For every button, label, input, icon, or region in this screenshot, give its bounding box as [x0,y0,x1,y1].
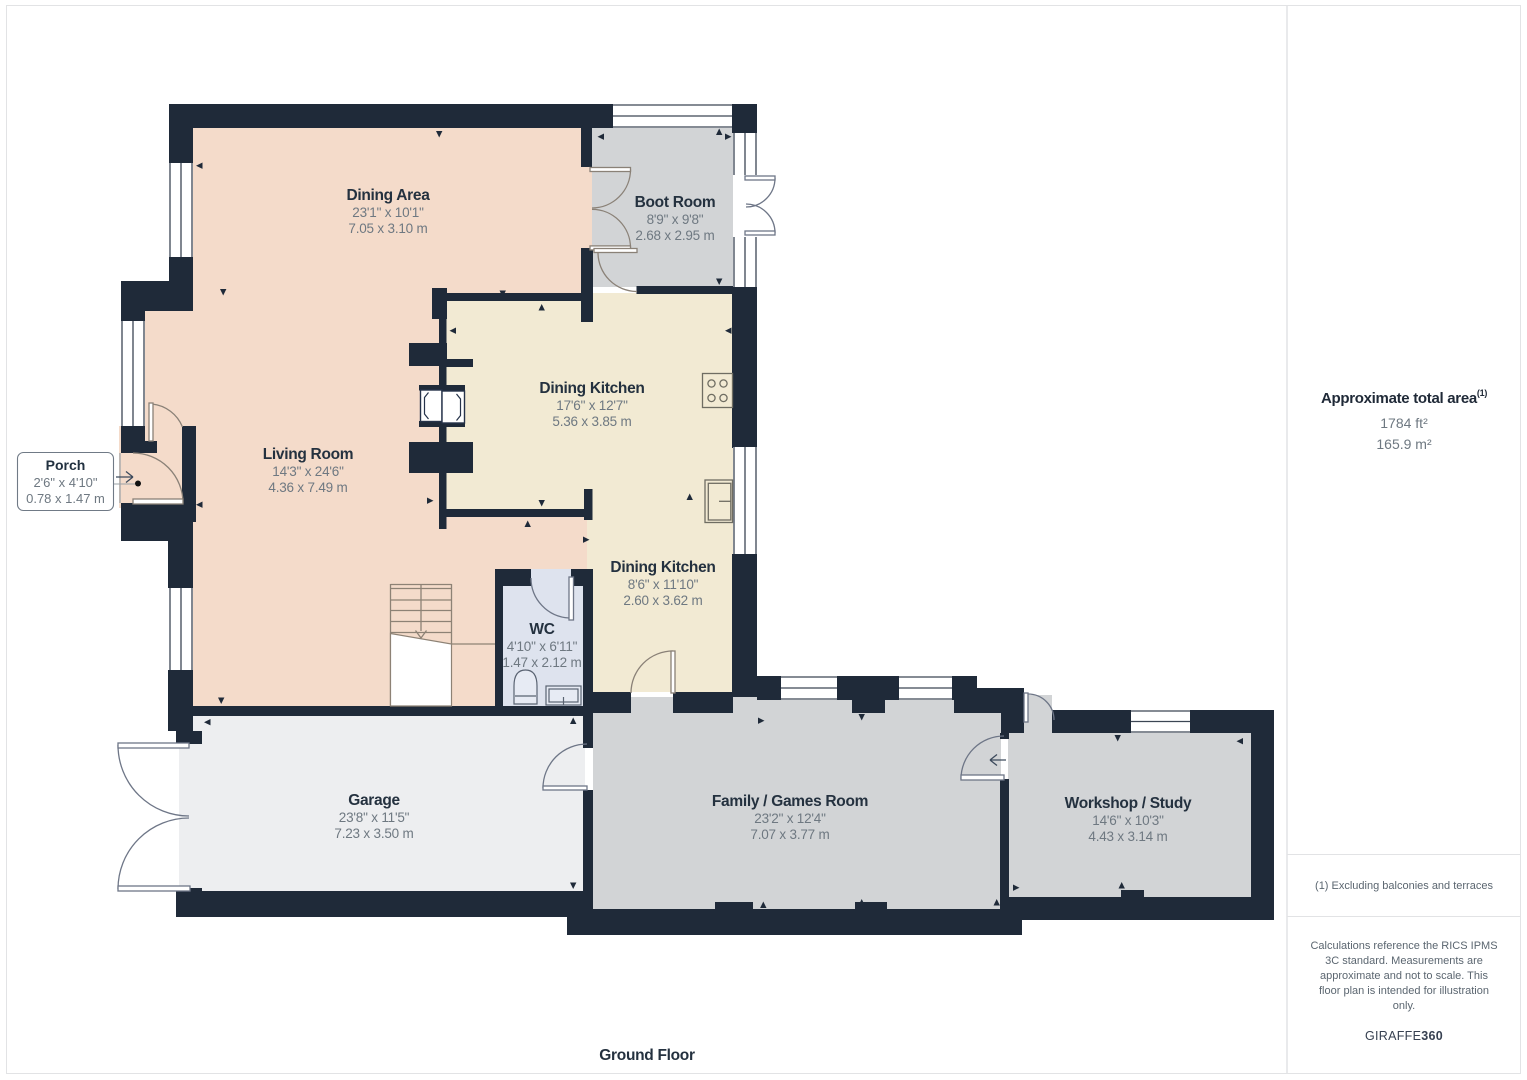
svg-text:WC: WC [529,621,554,638]
svg-text:(1) Excluding balconies and te: (1) Excluding balconies and terraces [1315,880,1493,892]
svg-text:approximate and not to scale.: approximate and not to scale. This [1320,970,1488,982]
svg-text:Ground Floor: Ground Floor [599,1047,695,1064]
svg-text:Dining Kitchen: Dining Kitchen [610,559,715,576]
svg-text:23'1" x 10'1": 23'1" x 10'1" [352,205,424,220]
svg-text:Dining Kitchen: Dining Kitchen [539,380,644,397]
svg-text:2.60 x 3.62 m: 2.60 x 3.62 m [623,593,702,608]
svg-text:Porch: Porch [46,457,86,473]
svg-text:Dining Area: Dining Area [346,187,430,204]
svg-text:Family / Games Room: Family / Games Room [712,793,868,810]
svg-text:Boot Room: Boot Room [635,194,716,211]
svg-text:7.05 x 3.10 m: 7.05 x 3.10 m [348,221,427,236]
svg-text:7.23 x 3.50 m: 7.23 x 3.50 m [334,826,413,841]
svg-text:2'6" x 4'10": 2'6" x 4'10" [33,475,97,490]
svg-text:Calculations reference the RIC: Calculations reference the RICS IPMS [1310,940,1497,952]
svg-text:8'9" x 9'8": 8'9" x 9'8" [647,212,704,227]
svg-text:5.36 x 3.85 m: 5.36 x 3.85 m [552,414,631,429]
svg-text:GIRAFFE360: GIRAFFE360 [1365,1029,1443,1043]
svg-text:7.07 x 3.77 m: 7.07 x 3.77 m [750,827,829,842]
svg-text:4.43 x 3.14 m: 4.43 x 3.14 m [1088,829,1167,844]
svg-text:Garage: Garage [348,792,400,809]
svg-text:14'3" x 24'6": 14'3" x 24'6" [272,464,344,479]
svg-text:4.36 x 7.49 m: 4.36 x 7.49 m [268,480,347,495]
svg-text:2.68 x 2.95 m: 2.68 x 2.95 m [635,228,714,243]
svg-text:floor plan is intended for ill: floor plan is intended for illustration [1319,985,1489,997]
svg-text:Approximate total area(1): Approximate total area(1) [1321,388,1487,407]
svg-text:only.: only. [1393,1000,1415,1012]
svg-text:Workshop / Study: Workshop / Study [1065,795,1192,812]
svg-text:0.78 x 1.47 m: 0.78 x 1.47 m [26,491,105,506]
svg-text:17'6" x 12'7": 17'6" x 12'7" [556,398,628,413]
svg-text:165.9 m²: 165.9 m² [1376,436,1432,452]
svg-text:23'8" x 11'5": 23'8" x 11'5" [339,810,410,825]
svg-text:1.47 x 2.12 m: 1.47 x 2.12 m [502,655,581,670]
svg-text:4'10" x 6'11": 4'10" x 6'11" [507,639,578,654]
svg-text:3C standard. Measurements are: 3C standard. Measurements are [1325,955,1483,967]
svg-text:Living Room: Living Room [263,446,354,463]
svg-text:1784 ft²: 1784 ft² [1380,415,1428,431]
svg-text:8'6" x 11'10": 8'6" x 11'10" [628,577,699,592]
svg-text:23'2" x 12'4": 23'2" x 12'4" [754,811,826,826]
svg-text:14'6" x 10'3": 14'6" x 10'3" [1092,813,1164,828]
